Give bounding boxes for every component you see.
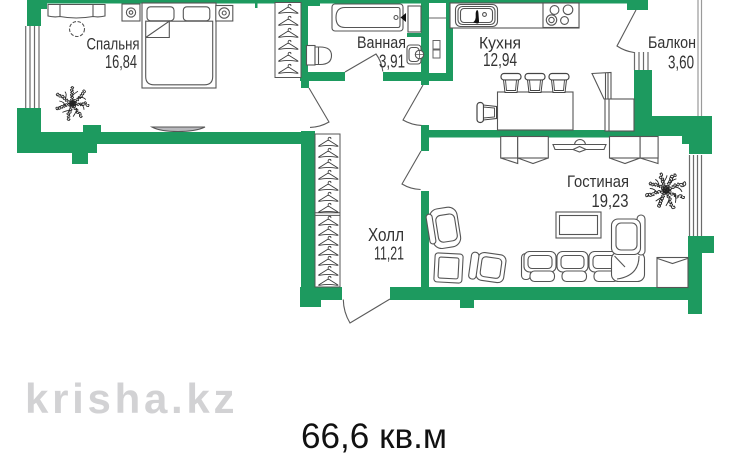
svg-text:Спальня: Спальня: [87, 35, 140, 54]
svg-text:3,91: 3,91: [379, 52, 405, 72]
svg-text:Ванная: Ванная: [357, 33, 406, 52]
svg-text:Гостиная: Гостиная: [567, 172, 629, 191]
svg-text:11,21: 11,21: [374, 244, 404, 264]
svg-text:16,84: 16,84: [105, 52, 137, 72]
svg-text:66,6 кв.м: 66,6 кв.м: [301, 417, 447, 456]
svg-text:Балкон: Балкон: [648, 33, 696, 52]
svg-text:12,94: 12,94: [483, 50, 517, 70]
svg-text:krisha.kz: krisha.kz: [25, 375, 236, 422]
svg-text:19,23: 19,23: [592, 191, 629, 211]
svg-text:3,60: 3,60: [668, 53, 694, 73]
svg-text:Холл: Холл: [368, 225, 404, 245]
